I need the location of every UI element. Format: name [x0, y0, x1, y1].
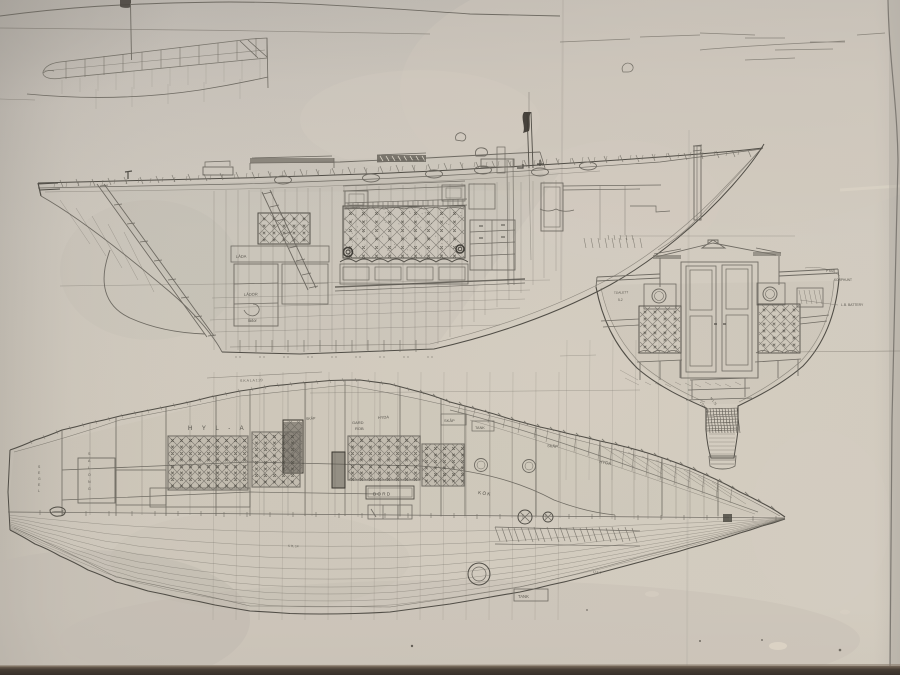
svg-text:KORPHUNT: KORPHUNT — [834, 278, 852, 282]
svg-text:5 7L 14: 5 7L 14 — [288, 544, 299, 548]
svg-text:SKÅP: SKÅP — [306, 415, 317, 421]
svg-text:TOALETT: TOALETT — [614, 290, 629, 295]
svg-text:HYDA: HYDA — [378, 414, 390, 420]
svg-text:S K A L A 1:20: S K A L A 1:20 — [240, 378, 263, 383]
svg-text:G: G — [38, 477, 41, 481]
svg-text:SKÅP: SKÅP — [444, 418, 455, 423]
svg-text:O: O — [88, 473, 91, 477]
svg-text:TANK: TANK — [475, 426, 485, 430]
svg-text:L: L — [88, 466, 90, 470]
svg-text:B O R D: B O R D — [373, 492, 391, 497]
svg-text:G: G — [88, 487, 91, 491]
svg-text:L.B. BATTERY: L.B. BATTERY — [841, 303, 864, 307]
svg-text:ROB: ROB — [355, 426, 364, 431]
svg-text:GARD: GARD — [352, 420, 364, 425]
svg-text:5-2: 5-2 — [618, 298, 623, 302]
svg-text:TANK: TANK — [518, 594, 529, 599]
svg-text:L: L — [38, 489, 40, 493]
svg-text:LÅDA: LÅDA — [236, 254, 247, 259]
svg-text:LÅDOR: LÅDOR — [244, 292, 258, 297]
svg-text:N: N — [88, 480, 91, 484]
svg-text:H Y L - A: H Y L - A — [188, 426, 248, 432]
